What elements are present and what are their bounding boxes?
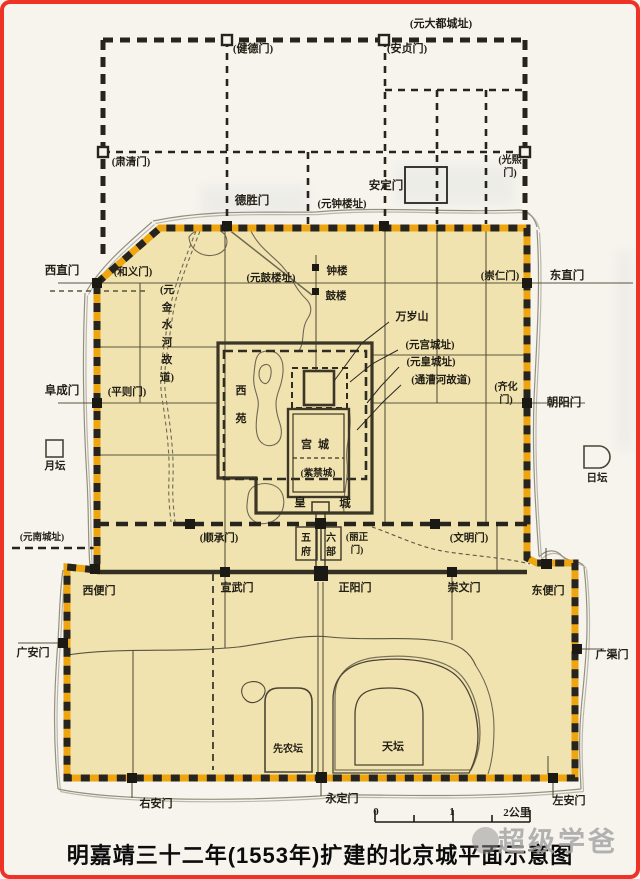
label-yuan-zhonglou: (元钟楼址) [318, 197, 367, 210]
label-yuan-nancheng-site: (元南城址) [20, 531, 64, 543]
label-zuoanmen: 左安门 [552, 793, 586, 807]
label-xizhimen: 西直门 [45, 263, 80, 277]
label-yuan-gulou: (元鼓楼址) [247, 271, 296, 284]
label-dongbianmen: 东便门 [532, 583, 565, 597]
label-tiantan: 天坛 [382, 739, 404, 753]
watermark-text: 超级学爸 [498, 820, 618, 859]
yuetan-altar [46, 440, 63, 457]
label-anzhenmen: (安贞门) [387, 41, 428, 55]
label-dongzhimen: 东直门 [550, 268, 585, 282]
label-scale-0: 0 [373, 806, 379, 818]
label-yuan-gongcheng-site: (元宫城址) [406, 338, 455, 351]
yuan-gate-markers [98, 35, 530, 157]
label-tonghuihe: (通漕河故道) [411, 373, 471, 386]
label-scale-1: 1 [449, 806, 455, 818]
label-gulou: 鼓楼 [326, 289, 347, 302]
watermark-logo-icon [472, 827, 499, 854]
label-yuan-dadu-site: (元大都城址) [410, 16, 473, 30]
label-shunchengmen: (顺承门) [200, 531, 239, 544]
label-fuchengmen: 阜成门 [45, 383, 80, 397]
label-zhonglou: 钟楼 [327, 264, 348, 277]
ditan-enclosure [405, 167, 447, 203]
label-andingmen: 安定门 [369, 178, 404, 192]
label-guanganmen: 广安门 [17, 645, 50, 659]
label-cheng: 城 [339, 496, 351, 510]
label-xuanwumen: 宣武门 [221, 580, 254, 594]
label-xiannongtan: 先农坛 [273, 742, 303, 755]
label-chaoyangmen: 朝阳门 [547, 395, 582, 409]
yuan-streets [103, 40, 525, 224]
label-xibianmen: 西便门 [83, 583, 116, 597]
label-yuan-huangcheng-site: (元皇城址) [407, 355, 456, 368]
label-youanmen: 右安门 [139, 796, 173, 810]
label-chongrenmen: (崇仁门) [481, 269, 520, 282]
label-yongdingmen: 永定门 [325, 791, 359, 805]
gulou-marker [312, 288, 319, 295]
label-heyimen: (和义门) [114, 265, 153, 278]
label-jiandemen: (健德门) [233, 41, 274, 55]
zhonglou-marker [312, 264, 319, 271]
ritan-altar [584, 446, 610, 468]
label-gongcheng: 宫城 [301, 437, 335, 451]
label-wenmingmen: (文明门) [450, 531, 489, 544]
label-deshengmen: 德胜门 [234, 193, 270, 207]
label-suqingmen: (肃清门) [112, 155, 151, 168]
beijing-1553-map: (元大都城址)(健德门)(安贞门)(肃清门)(光熙门)安定门德胜门(元钟楼址)钟… [0, 0, 640, 879]
label-zhengyangmen: 正阳门 [339, 580, 372, 594]
label-guangqumen: 广渠门 [596, 647, 629, 661]
label-guangximen: (光熙门) [498, 153, 521, 179]
chengtianmen-gate [312, 502, 329, 512]
label-scale-2km: 2公里 [503, 806, 531, 819]
label-huang: 皇 [294, 495, 306, 509]
label-chongwenmen: 崇文门 [448, 580, 481, 594]
label-pingzemen: (平则门) [108, 385, 147, 398]
label-zijincheng: (紫禁城) [301, 467, 336, 479]
label-ritan: 日坛 [587, 471, 608, 484]
label-wansuishan: 万岁山 [395, 309, 429, 323]
scanned-map-page: (元大都城址)(健德门)(安贞门)(肃清门)(光熙门)安定门德胜门(元钟楼址)钟… [0, 0, 640, 879]
label-yuetan: 月坛 [44, 459, 66, 472]
